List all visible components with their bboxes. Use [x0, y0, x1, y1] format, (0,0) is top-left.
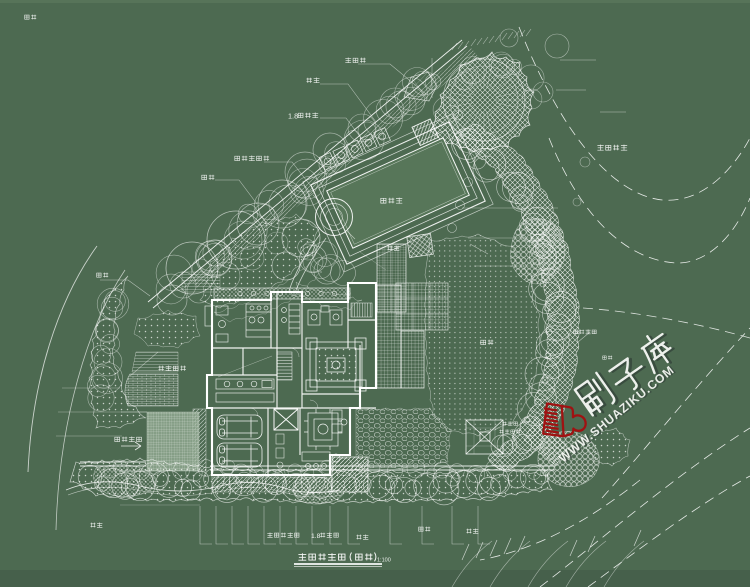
- svg-text:1.8: 1.8: [288, 112, 298, 121]
- svg-text:1.8: 1.8: [311, 533, 321, 540]
- svg-text:1:100: 1:100: [377, 558, 391, 564]
